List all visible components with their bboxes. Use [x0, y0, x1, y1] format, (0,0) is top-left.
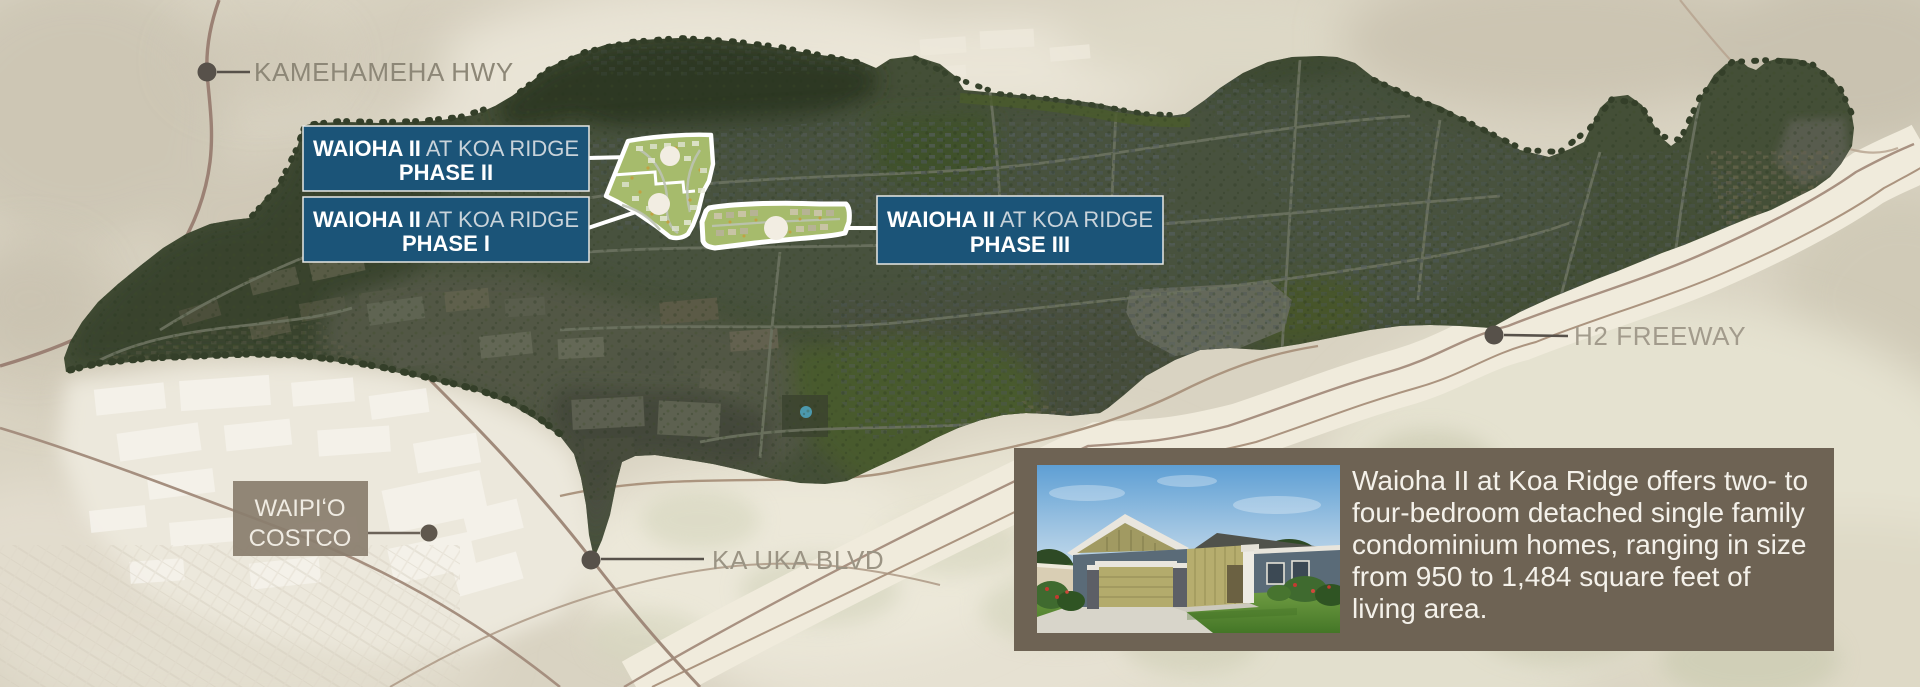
svg-text:COSTCO: COSTCO — [249, 525, 352, 552]
svg-text:KA UKA BLVD: KA UKA BLVD — [712, 545, 884, 575]
svg-text:KAMEHAMEHA HWY: KAMEHAMEHA HWY — [254, 57, 514, 87]
svg-text:PHASE II: PHASE II — [399, 160, 493, 185]
svg-text:WAIOHA II AT KOA RIDGE: WAIOHA II AT KOA RIDGE — [887, 207, 1153, 232]
svg-text:condominium homes, ranging in: condominium homes, ranging in size — [1352, 529, 1806, 560]
svg-text:living area.: living area. — [1352, 593, 1487, 624]
svg-text:WAIPIʻO: WAIPIʻO — [254, 495, 345, 522]
svg-text:PHASE I: PHASE I — [402, 231, 490, 256]
svg-text:Waioha II at Koa Ridge offers: Waioha II at Koa Ridge offers two- to — [1352, 465, 1808, 496]
svg-text:WAIOHA II AT KOA RIDGE: WAIOHA II AT KOA RIDGE — [313, 136, 579, 161]
svg-text:WAIOHA II AT KOA RIDGE: WAIOHA II AT KOA RIDGE — [313, 207, 579, 232]
svg-text:H2 FREEWAY: H2 FREEWAY — [1574, 321, 1746, 351]
svg-text:PHASE III: PHASE III — [970, 232, 1070, 257]
svg-text:four-bedroom detached single f: four-bedroom detached single family — [1352, 497, 1805, 528]
svg-text:from 950 to 1,484 square feet: from 950 to 1,484 square feet of — [1352, 561, 1751, 592]
